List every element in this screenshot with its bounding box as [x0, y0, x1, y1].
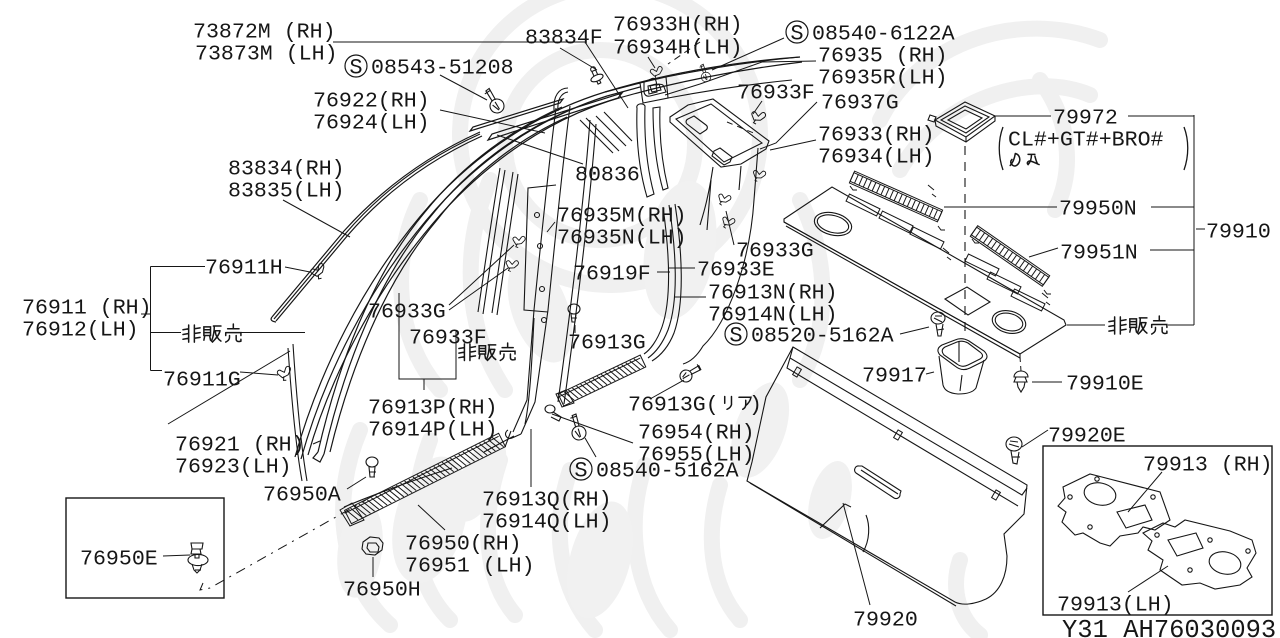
- svg-text:76911G: 76911G: [163, 369, 241, 393]
- svg-text:76933F: 76933F: [737, 82, 815, 106]
- svg-text:76913N(RH): 76913N(RH): [708, 282, 838, 306]
- svg-text:79910E: 79910E: [1066, 373, 1144, 397]
- svg-text:76912(LH): 76912(LH): [22, 319, 139, 343]
- svg-text:83834(RH): 83834(RH): [228, 158, 345, 182]
- svg-text:76934H(LH): 76934H(LH): [613, 37, 743, 61]
- svg-text:76914P(LH): 76914P(LH): [368, 419, 498, 443]
- svg-text:76914Q(LH): 76914Q(LH): [482, 511, 612, 535]
- svg-text:76937G: 76937G: [821, 92, 899, 116]
- svg-text:S: S: [574, 459, 587, 484]
- svg-text:76913P(RH): 76913P(RH): [368, 397, 498, 421]
- svg-text:73873M (LH): 73873M (LH): [195, 43, 338, 67]
- svg-text:Y31 AH76030093: Y31 AH76030093: [1062, 616, 1276, 638]
- svg-text:76954(RH): 76954(RH): [638, 422, 755, 446]
- svg-text:76950(RH): 76950(RH): [405, 533, 522, 557]
- svg-text:76935R(LH): 76935R(LH): [818, 67, 948, 91]
- svg-text:80836: 80836: [575, 164, 640, 188]
- svg-text:08543-51208: 08543-51208: [371, 57, 514, 81]
- svg-text:76935N(LH): 76935N(LH): [557, 227, 687, 251]
- svg-text:76922(RH): 76922(RH): [313, 90, 430, 114]
- svg-text:76950H: 76950H: [343, 579, 421, 603]
- svg-text:79950N: 79950N: [1059, 198, 1137, 222]
- svg-text:08520-5162A: 08520-5162A: [751, 325, 894, 349]
- svg-text:76933(RH): 76933(RH): [818, 124, 935, 148]
- svg-text:S: S: [349, 56, 362, 81]
- svg-text:76921 (RH): 76921 (RH): [175, 434, 305, 458]
- svg-text:CL#+GT#+BRO#: CL#+GT#+BRO#: [1008, 129, 1164, 153]
- svg-text:79913(LH): 79913(LH): [1057, 594, 1174, 618]
- svg-text:76950E: 76950E: [80, 548, 158, 572]
- svg-text:79920E: 79920E: [1048, 425, 1126, 449]
- svg-text:S: S: [790, 22, 803, 47]
- svg-text:76911H: 76911H: [205, 257, 283, 281]
- svg-text:76933G: 76933G: [368, 301, 446, 325]
- svg-text:76913Q(RH): 76913Q(RH): [482, 489, 612, 513]
- svg-text:79913 (RH): 79913 (RH): [1143, 454, 1273, 478]
- svg-text:76919F: 76919F: [573, 263, 651, 287]
- svg-text:73872M (RH): 73872M (RH): [193, 21, 336, 45]
- svg-text:76935M(RH): 76935M(RH): [557, 205, 687, 229]
- svg-text:76913G(: 76913G(: [628, 394, 719, 418]
- svg-text:79951N: 79951N: [1060, 242, 1138, 266]
- svg-text:76950A: 76950A: [263, 484, 341, 508]
- svg-text:76933E: 76933E: [697, 259, 775, 283]
- svg-text:): ): [749, 394, 762, 418]
- svg-text:76934(LH): 76934(LH): [818, 146, 935, 170]
- svg-text:79972: 79972: [1053, 107, 1118, 131]
- svg-text:08540-5162A: 08540-5162A: [596, 460, 739, 484]
- svg-text:79910: 79910: [1206, 221, 1271, 245]
- svg-text:79920: 79920: [853, 609, 918, 633]
- svg-text:76923(LH): 76923(LH): [175, 456, 292, 480]
- svg-text:76951 (LH): 76951 (LH): [405, 555, 535, 579]
- svg-text:76933F: 76933F: [409, 327, 487, 351]
- svg-text:76924(LH): 76924(LH): [313, 112, 430, 136]
- svg-text:79917: 79917: [862, 365, 927, 389]
- svg-text:83834F: 83834F: [525, 27, 603, 51]
- svg-text:08540-6122A: 08540-6122A: [812, 23, 955, 47]
- svg-text:76913G: 76913G: [568, 332, 646, 356]
- svg-text:76933H(RH): 76933H(RH): [613, 14, 743, 38]
- svg-text:83835(LH): 83835(LH): [228, 180, 345, 204]
- svg-text:76911 (RH): 76911 (RH): [22, 297, 152, 321]
- svg-text:S: S: [729, 324, 742, 349]
- svg-text:76935 (RH): 76935 (RH): [818, 45, 948, 69]
